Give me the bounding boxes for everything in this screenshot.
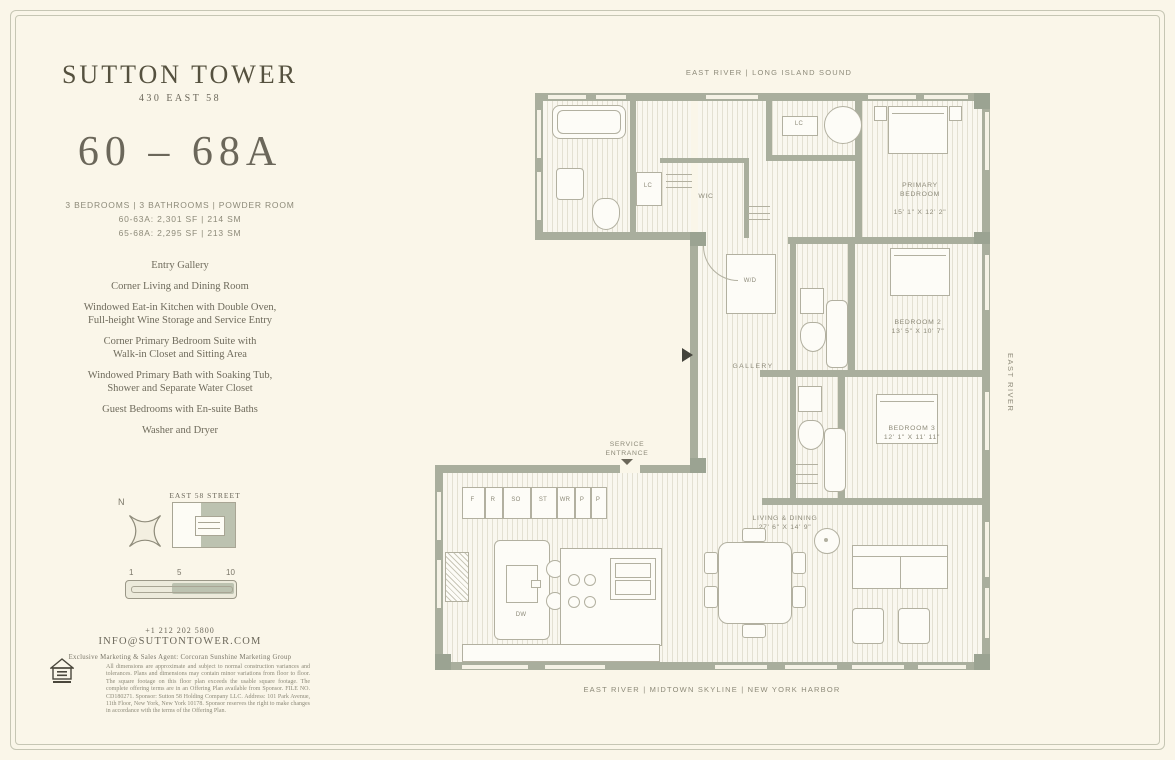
side-table	[814, 528, 840, 554]
nightstand	[949, 106, 962, 121]
closet-rod	[748, 206, 770, 220]
window	[537, 172, 541, 220]
closet-shelves	[796, 464, 818, 484]
dining-chair	[792, 552, 806, 574]
structural-column	[690, 232, 706, 246]
structural-column	[974, 232, 990, 244]
wall	[790, 244, 796, 370]
unit-specs: 3 BEDROOMS | 3 BATHROOMS | POWDER ROOM 6…	[30, 198, 330, 240]
legal-disclaimer: All dimensions are approximate and subje…	[106, 664, 310, 716]
linen-closet	[636, 172, 662, 206]
dining-chair	[792, 586, 806, 608]
bed-2	[890, 248, 950, 296]
dining-table	[718, 542, 792, 624]
closet-p1-label: P	[575, 497, 589, 503]
dining-chair	[704, 586, 718, 608]
cooktop-burner	[584, 574, 596, 586]
bedroom3-name: BEDROOM 3	[862, 424, 962, 433]
window	[985, 255, 989, 310]
closet-r-label: R	[485, 497, 501, 503]
nightstand	[874, 106, 887, 121]
contact-email: INFO@SUTTONTOWER.COM	[30, 636, 330, 647]
closet-wr-label: WR	[557, 497, 573, 503]
view-label-north: EAST RIVER | LONG ISLAND SOUND	[619, 68, 919, 77]
wall	[744, 158, 749, 238]
equal-housing-icon	[50, 658, 74, 684]
dishwasher-label: DW	[494, 612, 548, 618]
closet-st-label: ST	[531, 497, 555, 503]
sink	[556, 168, 584, 200]
side-table-center	[824, 538, 828, 542]
sofa-cushion-line	[900, 556, 901, 588]
window	[985, 112, 989, 170]
window	[596, 95, 626, 99]
toilet	[798, 420, 824, 450]
closet-p2	[591, 487, 607, 519]
bedroom2-label: BEDROOM 2 13' 5" X 10' 7"	[868, 318, 968, 336]
spec-line-area-1: 60-63A: 2,301 SF | 214 SM	[30, 212, 330, 226]
sink	[800, 288, 824, 314]
unit-number-title: 60 – 68A	[30, 128, 330, 176]
window	[985, 392, 989, 450]
structural-column	[974, 654, 990, 670]
bathtub	[826, 300, 848, 368]
dining-chair	[742, 528, 766, 542]
floorplan-page: SUTTON TOWER 430 EAST 58 60 – 68A 3 BEDR…	[0, 0, 1175, 760]
spec-line-rooms: 3 BEDROOMS | 3 BATHROOMS | POWDER ROOM	[30, 198, 330, 212]
service-entrance-label: SERVICE ENTRANCE	[592, 440, 662, 458]
window	[437, 560, 441, 608]
service-entrance-arrow-icon	[621, 459, 633, 465]
wall	[788, 237, 982, 244]
closet-rod	[666, 174, 692, 188]
bathtub-inner	[557, 110, 621, 134]
bedroom3-label: BEDROOM 3 12' 1" X 11' 11"	[862, 424, 962, 442]
wall	[435, 465, 620, 473]
sofa	[852, 545, 948, 589]
wall	[848, 244, 855, 377]
window	[548, 95, 586, 99]
closet-so-label: SO	[503, 497, 529, 503]
wall	[630, 101, 636, 232]
feature-primary-suite: Corner Primary Bedroom Suite with Walk-i…	[40, 335, 320, 361]
wall	[982, 93, 990, 670]
window	[715, 665, 767, 669]
bathtub	[552, 105, 626, 139]
shower	[824, 106, 862, 144]
building-address: 430 EAST 58	[30, 93, 330, 104]
window	[706, 95, 758, 99]
window	[785, 665, 837, 669]
primary-bedroom-dims: 15' 1" X 12' 2"	[870, 208, 970, 217]
feature-list: Entry Gallery Corner Living and Dining R…	[40, 259, 320, 445]
feature-living-dining: Corner Living and Dining Room	[40, 280, 320, 293]
keyplan-diagram	[172, 502, 236, 548]
gallery-label: GALLERY	[716, 362, 790, 371]
closet-f	[462, 487, 485, 519]
bedroom2-dims: 13' 5" X 10' 7"	[868, 327, 968, 336]
dining-chair	[704, 552, 718, 574]
closet-r	[485, 487, 503, 519]
primary-bedroom-name: PRIMARY BEDROOM	[870, 181, 970, 199]
window	[852, 665, 904, 669]
marketing-agent-line: Exclusive Marketing & Sales Agent: Corco…	[30, 654, 330, 661]
linen-closet-label: LC	[636, 183, 660, 189]
base-cabinets	[462, 644, 660, 662]
bedroom3-dims: 12' 1" X 11' 11"	[862, 433, 962, 442]
feature-primary-bath: Windowed Primary Bath with Soaking Tub, …	[40, 369, 320, 395]
bed-pillow-line	[880, 401, 934, 402]
toilet	[800, 322, 826, 352]
building-name: SUTTON TOWER	[30, 60, 330, 90]
closet-so	[503, 487, 531, 519]
wall	[766, 101, 772, 161]
faucet	[531, 580, 541, 588]
wall	[535, 232, 698, 240]
window	[985, 522, 989, 577]
feature-guest-bedrooms: Guest Bedrooms with En-suite Baths	[40, 403, 320, 416]
bed-pillow-line	[894, 255, 946, 256]
view-label-south: EAST RIVER | MIDTOWN SKYLINE | NEW YORK …	[562, 685, 862, 694]
bed-primary	[888, 106, 948, 154]
scale-bar	[125, 580, 237, 599]
contact-phone: +1 212 202 5800	[30, 626, 330, 635]
toilet	[592, 198, 620, 230]
dining-chair	[742, 624, 766, 638]
wall	[760, 370, 982, 377]
closet-p2-label: P	[591, 497, 605, 503]
island-sink	[506, 565, 538, 603]
window	[924, 95, 968, 99]
view-label-east: EAST RIVER	[1006, 338, 1015, 428]
window	[462, 665, 528, 669]
armchair	[898, 608, 930, 644]
window	[918, 665, 966, 669]
compass-rose-icon	[120, 506, 170, 556]
window	[868, 95, 916, 99]
bathtub	[824, 428, 846, 492]
cooktop-burner	[584, 596, 596, 608]
window	[985, 588, 989, 638]
structural-column	[690, 458, 706, 473]
entry-arrow-icon	[682, 348, 693, 362]
closet-f-label: F	[462, 497, 483, 503]
scale-tick-10: 10	[226, 568, 235, 577]
armchair	[852, 608, 884, 644]
cooktop-burner	[568, 574, 580, 586]
spec-line-area-2: 65-68A: 2,295 SF | 213 SM	[30, 226, 330, 240]
wall	[660, 158, 749, 163]
living-dining-name: LIVING & DINING	[730, 514, 840, 523]
scale-bar-outline	[131, 586, 233, 593]
scale-tick-5: 5	[177, 568, 181, 577]
window	[545, 665, 605, 669]
structural-column	[435, 654, 451, 670]
feature-washer-dryer: Washer and Dryer	[40, 424, 320, 437]
bedroom2-name: BEDROOM 2	[868, 318, 968, 327]
refrigerator	[445, 552, 469, 602]
scale-tick-1: 1	[129, 568, 133, 577]
keyplan-street-label: EAST 58 STREET	[160, 491, 250, 500]
feature-entry-gallery: Entry Gallery	[40, 259, 320, 272]
oven-upper	[615, 563, 651, 578]
closet-p1	[575, 487, 591, 519]
wall	[766, 155, 862, 161]
closet-st	[531, 487, 557, 519]
sink	[798, 386, 822, 412]
feature-kitchen: Windowed Eat-in Kitchen with Double Oven…	[40, 301, 320, 327]
window	[437, 492, 441, 540]
double-oven	[610, 558, 656, 600]
cooktop-burner	[568, 596, 580, 608]
closet-wr	[557, 487, 575, 519]
wall	[762, 498, 982, 505]
linen-closet-label: LC	[782, 121, 816, 127]
bed-pillow-line	[892, 113, 944, 114]
primary-bedroom-label: PRIMARY BEDROOM 15' 1" X 12' 2"	[870, 172, 970, 226]
structural-column	[974, 93, 990, 109]
window	[537, 110, 541, 158]
keyplan-unit-marker	[195, 516, 225, 536]
wic-label: WIC	[676, 192, 736, 201]
oven-lower	[615, 580, 651, 595]
